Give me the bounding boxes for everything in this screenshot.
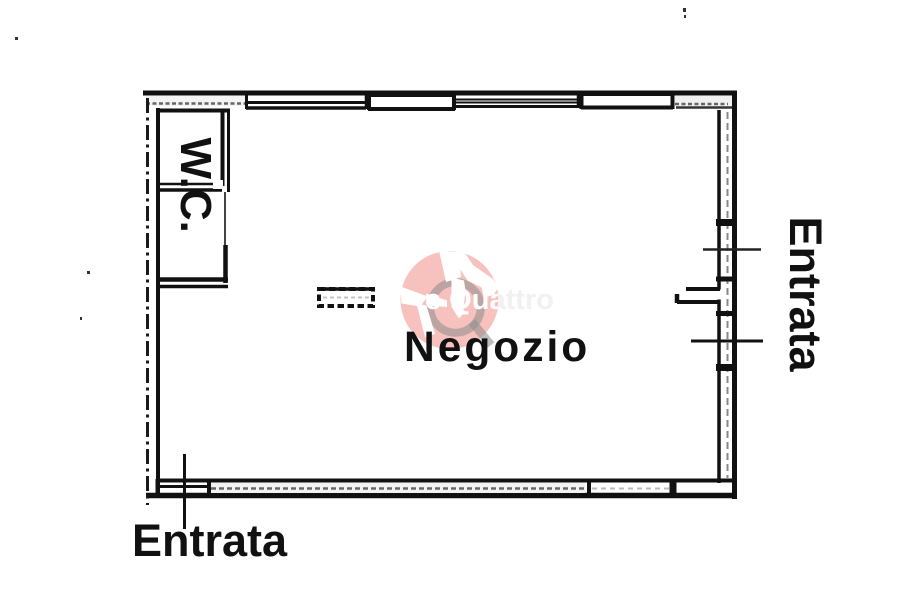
svg-text:W.C.: W.C.	[171, 138, 220, 233]
svg-text:Negozio: Negozio	[404, 324, 590, 371]
svg-text:Entrata: Entrata	[780, 217, 831, 373]
svg-text:Entrata: Entrata	[132, 515, 288, 566]
